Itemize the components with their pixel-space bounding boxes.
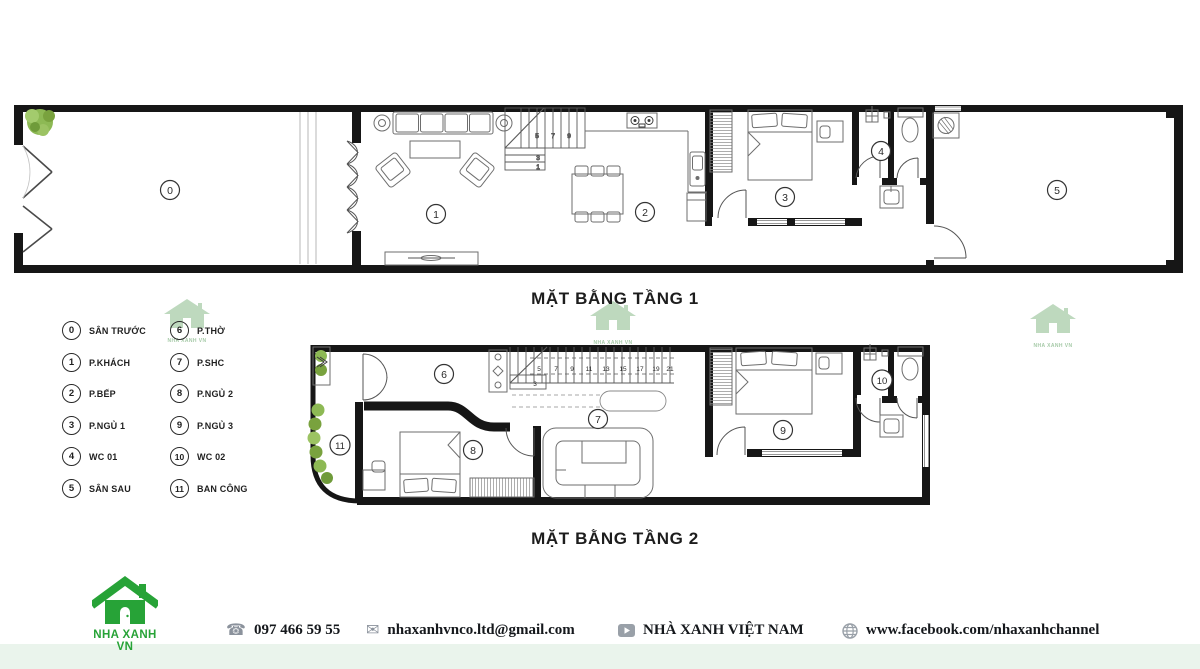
brand-name: NHA XANH VN — [86, 629, 164, 653]
basin — [880, 186, 903, 208]
door — [718, 190, 746, 218]
bed — [736, 348, 812, 414]
legend-item: 2 P.BẾP — [62, 384, 116, 403]
legend-number: 9 — [170, 416, 189, 435]
legend-number: 10 — [170, 447, 189, 466]
tv-cabinet — [385, 252, 478, 265]
stair-number: 15 — [619, 366, 627, 373]
legend-item: 9 P.NGỦ 3 — [170, 416, 233, 435]
back-yard — [933, 113, 966, 258]
stair-number: 1 — [536, 164, 540, 171]
legend-label: P.BẾP — [89, 389, 116, 399]
svg-text:4: 4 — [878, 146, 884, 158]
svg-text:6: 6 — [441, 369, 447, 381]
legend-item: 1 P.KHÁCH — [62, 353, 130, 372]
sofa — [393, 112, 493, 134]
stair-number: 9 — [567, 133, 571, 140]
floor1-title: MẶT BẰNG TẦNG 1 — [350, 289, 880, 309]
svg-text:10: 10 — [877, 376, 888, 387]
legend-label: SÂN SAU — [89, 484, 131, 494]
watermark-logo: NHA XANH VN — [1026, 303, 1080, 349]
legend-item: 0 SÂN TRƯỚC — [62, 321, 146, 340]
svg-text:3: 3 — [782, 192, 788, 204]
legend-number: 7 — [170, 353, 189, 372]
legend-label: WC 01 — [89, 452, 118, 462]
armchair — [375, 152, 411, 188]
gate-doors — [23, 146, 52, 252]
room-label: 5 — [1048, 181, 1067, 200]
legend-item: 11 BAN CÔNG — [170, 479, 248, 498]
footer-strip — [0, 644, 1200, 669]
room-label: 8 — [464, 441, 483, 460]
svg-text:1: 1 — [433, 209, 439, 221]
legend-label: SÂN TRƯỚC — [89, 326, 146, 336]
legend-item: 4 WC 01 — [62, 447, 118, 466]
legend-item: 5 SÂN SAU — [62, 479, 131, 498]
family-room — [543, 428, 653, 498]
tree — [25, 109, 55, 136]
legend-number: 0 — [62, 321, 81, 340]
coffee-table — [410, 141, 460, 158]
legend-label: P.NGỦ 1 — [89, 421, 125, 431]
bed — [748, 110, 812, 180]
curved-wall — [364, 406, 510, 427]
sectional-sofa — [543, 428, 653, 498]
stair-number: 21 — [666, 366, 674, 373]
channel-name: NHÀ XANH VIỆT NAM — [643, 622, 804, 639]
globe-icon — [842, 623, 858, 639]
stair-number: 3 — [533, 381, 537, 388]
stairs: 3 5 7 9 11 13 15 17 19 21 — [510, 347, 674, 411]
svg-text:9: 9 — [780, 425, 786, 437]
legend-number: 5 — [62, 479, 81, 498]
legend-label: P.NGỦ 2 — [197, 389, 233, 399]
stair-number: 19 — [652, 366, 660, 373]
floor2-title: MẶT BẰNG TẦNG 2 — [350, 529, 880, 549]
stair-number: 5 — [537, 366, 541, 373]
stair-number: 13 — [602, 366, 610, 373]
svg-text:11: 11 — [335, 441, 345, 452]
svg-text:7: 7 — [595, 414, 601, 426]
svg-text:0: 0 — [167, 185, 173, 197]
legend-label: P.NGỦ 3 — [197, 421, 233, 431]
footer-website: www.facebook.com/nhaxanhchannel — [842, 622, 1099, 639]
stair-number: 5 — [535, 133, 539, 140]
legend-label: P.KHÁCH — [89, 358, 130, 368]
room-label: 1 — [427, 205, 446, 224]
wardrobe — [710, 348, 732, 405]
legend-item: 3 P.NGỦ 1 — [62, 416, 125, 435]
room-label: 11 — [330, 435, 350, 455]
svg-text:8: 8 — [470, 445, 476, 457]
legend-label: BAN CÔNG — [197, 484, 248, 494]
folding-door — [347, 141, 358, 233]
svg-text:5: 5 — [1054, 185, 1060, 197]
floor1-plan: 5 7 9 3 1 — [0, 95, 1200, 285]
room-label: 7 — [589, 410, 608, 429]
brand-logo: NHA XANH VN — [86, 576, 164, 653]
paving-lines — [300, 112, 316, 264]
bed — [400, 432, 460, 497]
legend-number: 3 — [62, 416, 81, 435]
legend-item: 6 P.THỜ — [170, 321, 225, 340]
toilet — [898, 108, 923, 142]
room-label: 3 — [776, 188, 795, 207]
stove — [627, 113, 657, 128]
room-label: 2 — [636, 203, 655, 222]
bedroom-2 — [363, 428, 534, 497]
footer-channel: NHÀ XANH VIỆT NAM — [618, 622, 804, 639]
kitchen-sink — [690, 152, 705, 186]
desk-chair — [817, 121, 843, 142]
washing-machine — [933, 113, 959, 138]
dining-table — [572, 166, 623, 222]
legend-number: 2 — [62, 384, 81, 403]
legend-number: 4 — [62, 447, 81, 466]
legend-label: P.THỜ — [197, 326, 225, 336]
footer-phone: ☎ 097 466 59 55 — [226, 622, 340, 639]
room-labels: 6 7 8 9 10 11 — [330, 365, 892, 460]
email-address: nhaxanhvnco.ltd@gmail.com — [387, 622, 574, 639]
footer-email: ✉ nhaxanhvnco.ltd@gmail.com — [366, 622, 575, 639]
legend-number: 1 — [62, 353, 81, 372]
altar-cabinet — [489, 350, 507, 392]
desk-chair — [363, 461, 385, 490]
house-watermark-icon — [1026, 303, 1080, 337]
basin — [880, 415, 903, 437]
room-label: 0 — [161, 181, 180, 200]
door — [506, 428, 534, 456]
legend-label: WC 02 — [197, 452, 226, 462]
stair-number: 11 — [586, 366, 593, 373]
phone-icon: ☎ — [226, 623, 246, 639]
youtube-icon — [618, 624, 635, 637]
desk-chair — [816, 353, 842, 374]
stair-number: 3 — [536, 155, 540, 162]
room-label: 4 — [872, 142, 891, 161]
living-room — [374, 112, 512, 265]
room-label: 6 — [435, 365, 454, 384]
stair-number: 17 — [636, 366, 644, 373]
stair-number: 7 — [554, 366, 558, 373]
wardrobe — [470, 478, 534, 497]
phone-number: 097 466 59 55 — [254, 622, 340, 639]
armchair — [459, 152, 495, 188]
legend-number: 6 — [170, 321, 189, 340]
front-yard — [23, 109, 358, 264]
wardrobe — [710, 110, 732, 172]
legend-item: 8 P.NGỦ 2 — [170, 384, 233, 403]
stair-number: 7 — [551, 133, 555, 140]
legend-item: 10 WC 02 — [170, 447, 226, 466]
presentation-board: NHA XANH VN NHA XANH VN NHA XANH VN — [0, 0, 1200, 669]
fridge — [687, 193, 706, 221]
back-door — [934, 226, 966, 258]
double-door — [363, 354, 387, 400]
legend-number: 8 — [170, 384, 189, 403]
room-label: 9 — [774, 421, 793, 440]
stair-number: 9 — [570, 366, 574, 373]
bedroom-3 — [710, 348, 842, 455]
legend-number: 11 — [170, 479, 189, 498]
door — [856, 156, 918, 178]
house-logo-icon — [92, 576, 158, 624]
watermark-text: NHA XANH VN — [1026, 343, 1080, 349]
stair-rail — [512, 391, 666, 411]
svg-text:2: 2 — [642, 207, 648, 219]
walls — [14, 105, 1183, 273]
legend-label: P.SHC — [197, 358, 224, 368]
website-url: www.facebook.com/nhaxanhchannel — [866, 622, 1099, 639]
stairs: 5 7 9 3 1 — [505, 108, 585, 171]
envelope-icon: ✉ — [366, 623, 379, 639]
floor2-plan: 3 5 7 9 11 13 15 17 19 21 — [290, 333, 950, 515]
room-label: 10 — [872, 370, 892, 390]
legend-item: 7 P.SHC — [170, 353, 224, 372]
